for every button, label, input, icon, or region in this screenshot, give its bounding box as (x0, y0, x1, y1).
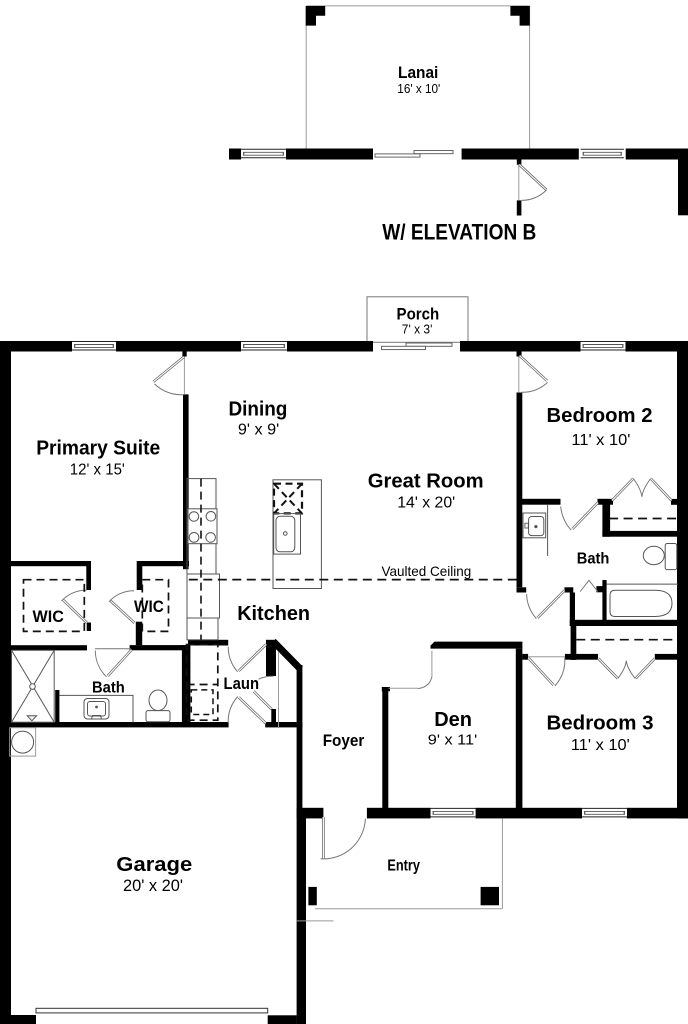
svg-text:Laun: Laun (224, 675, 260, 693)
svg-text:W/ ELEVATION B: W/ ELEVATION B (382, 220, 536, 245)
svg-text:11' x 10': 11' x 10' (571, 432, 630, 449)
svg-text:Foyer: Foyer (323, 731, 365, 750)
svg-text:WIC: WIC (134, 598, 164, 616)
svg-text:16' x 10': 16' x 10' (397, 82, 440, 96)
svg-text:7' x 3': 7' x 3' (402, 323, 433, 337)
svg-text:WIC: WIC (33, 608, 65, 626)
svg-text:Entry: Entry (387, 858, 420, 875)
svg-text:Bath: Bath (92, 679, 125, 696)
svg-text:Vaulted Ceiling: Vaulted Ceiling (382, 563, 472, 579)
svg-text:9' x 9': 9' x 9' (238, 422, 279, 439)
svg-text:Dining: Dining (228, 398, 287, 421)
svg-text:Primary Suite: Primary Suite (36, 437, 160, 459)
svg-text:9' x 11': 9' x 11' (428, 731, 478, 748)
svg-text:Bath: Bath (577, 551, 610, 568)
svg-text:20' x 20': 20' x 20' (123, 877, 183, 895)
svg-text:Bedroom 2: Bedroom 2 (547, 405, 653, 427)
svg-text:Den: Den (434, 709, 472, 731)
svg-text:Garage: Garage (116, 853, 192, 876)
svg-text:14' x 20': 14' x 20' (397, 495, 455, 512)
svg-text:Kitchen: Kitchen (237, 603, 310, 625)
svg-text:Lanai: Lanai (398, 64, 438, 82)
svg-text:Great Room: Great Room (368, 471, 484, 493)
svg-text:Porch: Porch (397, 304, 440, 323)
svg-text:12' x 15': 12' x 15' (70, 462, 125, 479)
svg-text:Bedroom 3: Bedroom 3 (547, 713, 654, 735)
svg-text:11' x 10': 11' x 10' (571, 737, 630, 754)
